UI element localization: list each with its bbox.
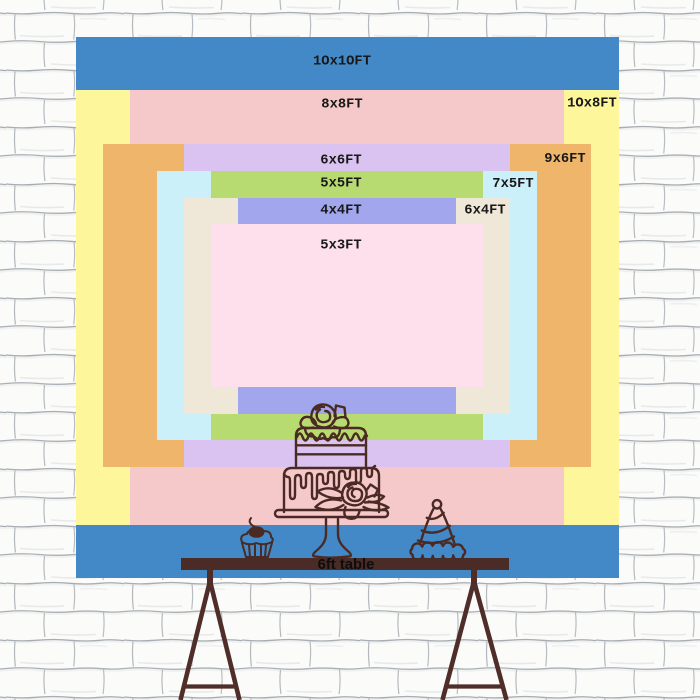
svg-text:9x6FT: 9x6FT	[544, 152, 585, 167]
svg-text:6x4FT: 6x4FT	[464, 204, 505, 219]
svg-text:6ft table: 6ft table	[318, 557, 375, 573]
svg-text:5x5FT: 5x5FT	[320, 177, 361, 192]
svg-text:4x4FT: 4x4FT	[320, 204, 361, 219]
svg-text:6x6FT: 6x6FT	[320, 154, 361, 169]
svg-text:1Ox1OFT: 1Ox1OFT	[313, 55, 371, 70]
svg-text:7x5FT: 7x5FT	[492, 177, 533, 192]
svg-text:1Ox8FT: 1Ox8FT	[567, 97, 617, 112]
svg-text:5x3FT: 5x3FT	[320, 239, 361, 254]
svg-text:8x8FT: 8x8FT	[321, 98, 362, 113]
